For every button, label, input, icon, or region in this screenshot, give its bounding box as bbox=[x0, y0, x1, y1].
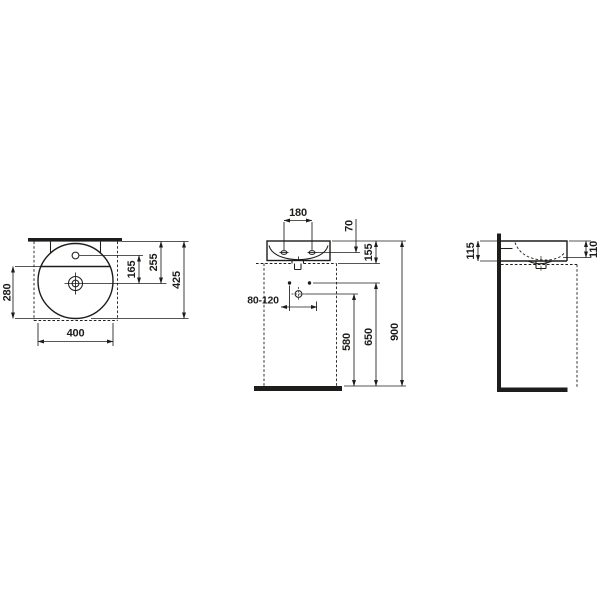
drain-stub-front bbox=[292, 261, 304, 270]
dim-label-165: 165 bbox=[126, 261, 138, 279]
bowl-profile-dashed bbox=[515, 243, 565, 261]
side-dashed-outline bbox=[501, 265, 577, 388]
dim-label-580: 580 bbox=[341, 333, 353, 351]
dim-label-400: 400 bbox=[67, 328, 85, 340]
tap-hole-icon bbox=[72, 252, 79, 259]
dim-label-425: 425 bbox=[171, 271, 183, 289]
fixing-dot-right bbox=[308, 281, 311, 284]
ext-side-left-lines bbox=[480, 241, 497, 261]
ext-tap-hole-lines bbox=[284, 222, 312, 250]
floor-bar-side bbox=[497, 388, 568, 393]
floor-bar-front bbox=[254, 386, 342, 391]
dim-label-70: 70 bbox=[344, 220, 356, 232]
dim-label-280: 280 bbox=[2, 284, 14, 302]
dim-label-110: 110 bbox=[588, 241, 600, 258]
wall-bar bbox=[28, 238, 122, 242]
front-view: 180 70 155 80-120 580 650 900 bbox=[247, 207, 406, 391]
top-view: 280 165 255 425 400 bbox=[2, 238, 189, 346]
dim-label-80-120: 80-120 bbox=[247, 295, 279, 307]
basin-side-outline bbox=[501, 241, 567, 261]
washbasin-technical-drawing: 280 165 255 425 400 bbox=[0, 0, 600, 600]
dim-label-255: 255 bbox=[148, 254, 160, 272]
dim-label-650: 650 bbox=[363, 328, 375, 346]
drain-pipe-crosshair bbox=[292, 287, 306, 301]
dim-label-180: 180 bbox=[289, 207, 307, 219]
wall-bar-side bbox=[497, 234, 501, 393]
fixing-dot-left bbox=[288, 281, 291, 284]
side-view: 115 110 bbox=[465, 234, 600, 393]
dim-label-155: 155 bbox=[363, 244, 375, 262]
dim-label-900: 900 bbox=[389, 323, 401, 341]
dim-label-115: 115 bbox=[465, 242, 477, 259]
front-dashed-sides bbox=[264, 264, 337, 387]
spec-sheet-canvas: 280 165 255 425 400 bbox=[0, 0, 600, 600]
